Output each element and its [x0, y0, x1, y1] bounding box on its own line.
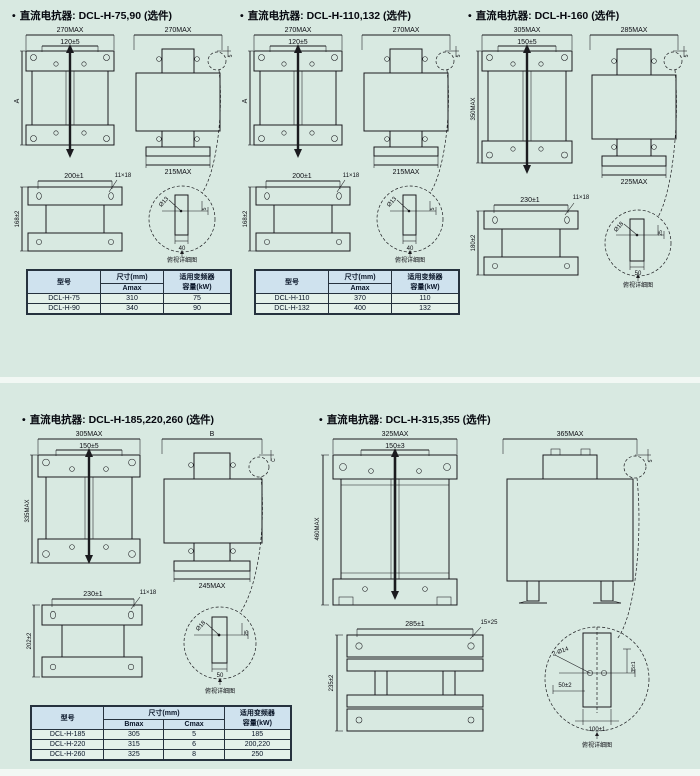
section-title: •直流电抗器: DCL-H-160 (选件): [468, 8, 692, 23]
table-row: DCL-H-2603258250: [31, 750, 291, 761]
side-view-drawing: 285MAX 225MAX 5: [590, 27, 690, 217]
cell-dim: 6: [164, 740, 224, 750]
dim-label: Ø13: [158, 196, 170, 209]
table-row: DCL-H-7531075: [27, 294, 231, 304]
bullet-icon: •: [468, 10, 472, 22]
detail-view-label: 俯视详细图: [582, 741, 612, 749]
section-title-text: 直流电抗器: DCL-H-185,220,260 (选件): [30, 414, 214, 426]
section-title: •直流电抗器: DCL-H-110,132 (选件): [240, 8, 464, 23]
capacity-line2: 容量(kW): [410, 284, 439, 291]
section-title-text: 直流电抗器: DCL-H-315,355 (选件): [327, 414, 491, 426]
col-subheader: Amax: [329, 284, 392, 294]
dim-label: 50±2: [558, 683, 572, 689]
spec-table: 型号 尺寸(mm) 适用变频器容量(kW) Bmax Cmax DCL-H-18…: [30, 705, 292, 761]
section-title-text: 直流电抗器: DCL-H-75,90 (选件): [20, 10, 172, 22]
dim-label: 460MAX: [315, 517, 321, 540]
section-dcl-h-315-355: •直流电抗器: DCL-H-315,355 (选件) 325MAX 150±3 …: [305, 412, 697, 757]
dim-label: 202±2: [27, 632, 33, 649]
dim-label: 25: [244, 630, 250, 636]
col-header-capacity: 适用变频器容量(kW): [224, 706, 291, 730]
dim-label: Ø18: [613, 221, 625, 234]
bullet-icon: •: [12, 10, 16, 22]
dim-label: 225MAX: [621, 179, 648, 186]
bullet-icon: •: [319, 414, 323, 426]
col-header-model: 型号: [27, 270, 101, 294]
dim-label: 200±1: [292, 173, 312, 180]
dim-label: A: [14, 98, 21, 103]
cell-capacity: 75: [164, 294, 232, 304]
dim-label: 15×25: [481, 620, 499, 626]
bottom-view-drawing: 200±1 11×18 168±2: [243, 173, 360, 251]
cell-capacity: 90: [164, 304, 232, 315]
dim-label: 5: [202, 207, 208, 210]
dim-label: 325MAX: [382, 431, 409, 438]
detail-view-label: 俯视详细图: [395, 256, 425, 263]
front-view-drawing: 305MAX 150±5 335MAX: [25, 431, 140, 564]
section-dcl-h-110-132: •直流电抗器: DCL-H-110,132 (选件) 270MAX 120±5 …: [240, 8, 464, 315]
bullet-icon: •: [240, 10, 244, 22]
reactor-drawing-75-90: 270MAX 120±5 A 270MAX 215MAX 5 2: [12, 23, 234, 263]
section-title: •直流电抗器: DCL-H-185,220,260 (选件): [22, 412, 292, 427]
cell-dim: 8: [164, 750, 224, 761]
dim-label: 5: [648, 459, 654, 462]
dim-label: 270MAX: [393, 27, 420, 34]
dim-label: 168±2: [15, 210, 21, 227]
table-row: DCL-H-110370110: [255, 294, 459, 304]
dim-label: 215MAX: [393, 169, 420, 176]
dim-label: 5: [430, 207, 436, 210]
bullet-icon: •: [22, 414, 26, 426]
capacity-line1: 适用变频器: [240, 710, 275, 717]
dim-label: 11×18: [343, 173, 360, 179]
table-row: DCL-H-9034090: [27, 304, 231, 315]
dim-label: C: [271, 458, 277, 462]
cell-dim: 305: [104, 730, 164, 740]
front-view-drawing: 325MAX 150±3 460MAX: [315, 431, 457, 605]
bottom-view-drawing: 230±1 11×18 202±2: [27, 590, 157, 677]
dim-label: 245MAX: [199, 583, 226, 590]
cell-model: DCL-H-260: [31, 750, 104, 761]
dim-label: 5: [228, 54, 234, 57]
bottom-view-drawing: 200±1 11×18 168±2: [15, 173, 132, 251]
dim-label: 270MAX: [285, 27, 312, 34]
cell-capacity: 250: [224, 750, 291, 761]
dim-label: 215MAX: [165, 169, 192, 176]
table-row: DCL-H-2203156200,220: [31, 740, 291, 750]
dim-label: 235±2: [329, 674, 335, 691]
front-view-drawing: 270MAX 120±5 A: [14, 27, 114, 158]
cell-model: DCL-H-220: [31, 740, 104, 750]
terminal-detail-drawing: Ø18 50 25 俯视详细图: [605, 210, 671, 289]
section-title-text: 直流电抗器: DCL-H-110,132 (选件): [248, 10, 411, 22]
terminal-detail-drawing: 2-Ø14 50±2 100±1 35±1 俯视详细图: [545, 627, 649, 749]
front-view-drawing: 305MAX 150±5 350MAX: [471, 27, 572, 174]
section-dcl-h-160: •直流电抗器: DCL-H-160 (选件) 305MAX 150±5 350M…: [468, 8, 692, 289]
dim-label: 305MAX: [76, 431, 103, 438]
dim-label: 365MAX: [557, 431, 584, 438]
cell-dim: 370: [329, 294, 392, 304]
section-title: •直流电抗器: DCL-H-75,90 (选件): [12, 8, 236, 23]
section-dcl-h-185-220-260: •直流电抗器: DCL-H-185,220,260 (选件) 305MAX 15…: [22, 412, 292, 761]
cell-dim: 5: [164, 730, 224, 740]
dim-label: 2-Ø14: [552, 646, 570, 658]
reactor-drawing-110-132: 270MAX 120±5 A 270MAX 215MAX 5 2: [240, 23, 462, 263]
dim-label: 11×18: [115, 173, 132, 179]
cell-model: DCL-H-75: [27, 294, 101, 304]
dim-label: 350MAX: [471, 97, 477, 120]
side-view-drawing: 270MAX 215MAX 5: [362, 27, 462, 193]
cell-capacity: 185: [224, 730, 291, 740]
table-row: DCL-H-1853055185: [31, 730, 291, 740]
section-divider: [0, 377, 700, 383]
cell-dim: 325: [104, 750, 164, 761]
reactor-drawing-160: 305MAX 150±5 350MAX 285MAX 225MAX 5: [468, 23, 690, 289]
cell-dim: 340: [101, 304, 164, 315]
dim-label: 25: [658, 230, 664, 236]
terminal-detail-drawing: Ø13 40 5 俯视详细图: [377, 186, 443, 263]
col-header-dim: 尺寸(mm): [104, 706, 224, 720]
col-subheader: Bmax: [104, 720, 164, 730]
dim-label: 335MAX: [25, 499, 31, 522]
dim-label: Ø13: [386, 196, 398, 209]
side-view-drawing: B 245MAX C: [162, 431, 277, 613]
cell-dim: 310: [101, 294, 164, 304]
dim-label: 180±2: [471, 234, 477, 251]
dim-label: 168±2: [243, 210, 249, 227]
table-row: DCL-H-132400132: [255, 304, 459, 315]
cell-model: DCL-H-185: [31, 730, 104, 740]
cell-capacity: 132: [392, 304, 460, 315]
col-subheader: Cmax: [164, 720, 224, 730]
dim-label: 50: [217, 673, 224, 679]
cell-dim: 400: [329, 304, 392, 315]
dim-label: 5: [456, 54, 462, 57]
dim-label: 230±1: [520, 197, 540, 204]
dim-label: 100±1: [589, 727, 606, 733]
cell-capacity: 200,220: [224, 740, 291, 750]
front-view-drawing: 270MAX 120±5 A: [242, 27, 342, 158]
dim-label: 285±1: [405, 621, 425, 628]
dim-label: 11×18: [573, 195, 590, 201]
terminal-detail-drawing: Ø13 40 5 俯视详细图: [149, 186, 215, 263]
capacity-line2: 容量(kW): [243, 720, 272, 727]
cell-capacity: 110: [392, 294, 460, 304]
section-title: •直流电抗器: DCL-H-315,355 (选件): [319, 412, 697, 427]
dim-label: 270MAX: [165, 27, 192, 34]
page-bottom-band: [0, 769, 700, 776]
side-view-drawing: 270MAX 215MAX 5: [134, 27, 234, 193]
col-header-dim: 尺寸(mm): [329, 270, 392, 284]
dim-label: A: [242, 98, 249, 103]
capacity-line1: 适用变频器: [408, 274, 443, 281]
spec-table: 型号 尺寸(mm) 适用变频器容量(kW) Amax DCL-H-1103701…: [254, 269, 460, 315]
reactor-drawing-315-355: 325MAX 150±3 460MAX 365MAX 5 285±1: [305, 427, 695, 757]
capacity-line1: 适用变频器: [180, 274, 215, 281]
dim-label: Ø18: [195, 620, 207, 633]
capacity-line2: 容量(kW): [182, 284, 211, 291]
cell-model: DCL-H-110: [255, 294, 329, 304]
detail-view-label: 俯视详细图: [167, 256, 197, 263]
col-header-model: 型号: [255, 270, 329, 294]
col-header-model: 型号: [31, 706, 104, 730]
dim-label: 270MAX: [57, 27, 84, 34]
terminal-detail-drawing: Ø18 50 25 俯视详细图: [184, 607, 256, 695]
dim-label: 230±1: [83, 591, 103, 598]
reactor-drawing-185-260: 305MAX 150±5 335MAX B 245MAX C 2: [22, 427, 290, 699]
dim-label: 5: [684, 54, 690, 57]
section-dcl-h-75-90: •直流电抗器: DCL-H-75,90 (选件) 270MAX 120±5 A …: [12, 8, 236, 315]
dim-label: 11×18: [140, 590, 157, 596]
bottom-view-drawing: 285±1 15×25 235±2: [329, 620, 498, 731]
cell-model: DCL-H-90: [27, 304, 101, 315]
dim-label: B: [210, 431, 215, 438]
dim-label: 305MAX: [514, 27, 541, 34]
side-view-drawing: 365MAX 5: [503, 431, 654, 639]
detail-view-label: 俯视详细图: [205, 687, 235, 695]
cell-dim: 315: [104, 740, 164, 750]
dim-label: 200±1: [64, 173, 84, 180]
cell-model: DCL-H-132: [255, 304, 329, 315]
section-title-text: 直流电抗器: DCL-H-160 (选件): [476, 10, 620, 22]
spec-table: 型号 尺寸(mm) 适用变频器容量(kW) Amax DCL-H-7531075…: [26, 269, 232, 315]
col-header-dim: 尺寸(mm): [101, 270, 164, 284]
col-subheader: Amax: [101, 284, 164, 294]
detail-view-label: 俯视详细图: [623, 281, 653, 289]
col-header-capacity: 适用变频器容量(kW): [164, 270, 232, 294]
dim-label: 35±1: [631, 661, 637, 672]
col-header-capacity: 适用变频器容量(kW): [392, 270, 460, 294]
bottom-view-drawing: 230±1 11×18 180±2: [471, 195, 590, 275]
dim-label: 285MAX: [621, 27, 648, 34]
